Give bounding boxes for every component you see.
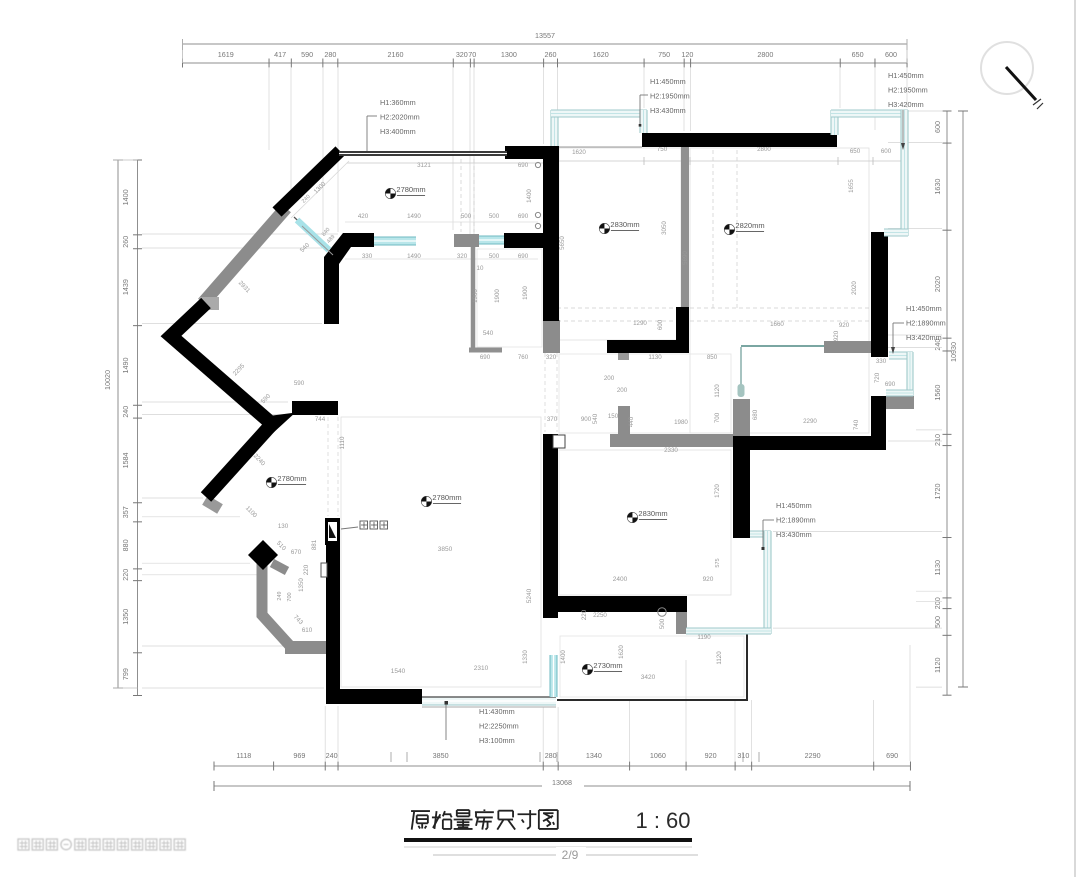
svg-text:610: 610 — [302, 627, 313, 634]
svg-text:1584: 1584 — [121, 452, 130, 468]
svg-text:H3:400mm: H3:400mm — [380, 127, 416, 136]
svg-text:320: 320 — [546, 354, 557, 361]
svg-text:5240: 5240 — [526, 588, 533, 603]
svg-text:881: 881 — [311, 539, 318, 550]
svg-text:1400: 1400 — [560, 650, 567, 664]
svg-text:2290: 2290 — [803, 418, 817, 425]
svg-text:150: 150 — [608, 413, 619, 420]
svg-text:590: 590 — [294, 380, 305, 387]
svg-text:H2:2020mm: H2:2020mm — [380, 113, 420, 122]
svg-text:969: 969 — [293, 751, 305, 760]
svg-text:H3:430mm: H3:430mm — [776, 530, 812, 539]
svg-text:880: 880 — [121, 539, 130, 551]
svg-text:690: 690 — [518, 162, 529, 169]
svg-text:2020: 2020 — [933, 276, 942, 292]
svg-text:540: 540 — [483, 330, 494, 337]
svg-text:690: 690 — [480, 354, 491, 361]
svg-text:500: 500 — [659, 618, 666, 629]
svg-text:650: 650 — [850, 148, 861, 155]
svg-text:280: 280 — [324, 50, 336, 59]
svg-text:330: 330 — [362, 253, 373, 260]
svg-text:249: 249 — [277, 591, 283, 600]
svg-text:1130: 1130 — [648, 354, 662, 361]
svg-text:13557: 13557 — [535, 31, 555, 40]
svg-text:600: 600 — [657, 319, 664, 330]
svg-text:H2:1890mm: H2:1890mm — [776, 516, 816, 525]
svg-text:720: 720 — [874, 372, 881, 383]
svg-text:H1:450mm: H1:450mm — [906, 304, 942, 313]
svg-text:744: 744 — [315, 416, 326, 423]
svg-text:690: 690 — [518, 253, 529, 260]
svg-text:H1:430mm: H1:430mm — [479, 707, 515, 716]
svg-text:H3:420mm: H3:420mm — [888, 100, 924, 109]
svg-text:600: 600 — [885, 50, 897, 59]
svg-text:1655: 1655 — [848, 179, 855, 193]
svg-text:370: 370 — [547, 416, 558, 423]
svg-text:1400: 1400 — [526, 189, 533, 203]
svg-text:260: 260 — [545, 50, 557, 59]
svg-text:600: 600 — [881, 148, 892, 155]
svg-text:850: 850 — [707, 354, 718, 361]
svg-text:320: 320 — [456, 50, 468, 59]
svg-text:2830mm: 2830mm — [638, 509, 667, 518]
svg-text:1350: 1350 — [121, 609, 130, 625]
svg-text:920: 920 — [833, 330, 840, 341]
svg-text:1980: 1980 — [674, 419, 688, 426]
svg-text:1619: 1619 — [218, 50, 234, 59]
svg-text:2/9: 2/9 — [562, 848, 579, 862]
svg-text:200: 200 — [604, 375, 615, 382]
svg-text:5690: 5690 — [682, 251, 689, 265]
svg-text:760: 760 — [518, 354, 529, 361]
svg-text:3121: 3121 — [417, 162, 431, 169]
svg-text:1620: 1620 — [618, 645, 625, 659]
svg-text:240: 240 — [121, 406, 130, 418]
svg-text:920: 920 — [839, 322, 850, 329]
svg-text:600: 600 — [933, 121, 942, 133]
svg-text:120: 120 — [681, 50, 693, 59]
svg-text:690: 690 — [885, 381, 896, 388]
svg-text:1120: 1120 — [933, 658, 942, 673]
svg-text:670: 670 — [291, 549, 302, 556]
svg-text:3850: 3850 — [433, 751, 449, 760]
svg-text:3420: 3420 — [641, 674, 656, 681]
svg-text:1720: 1720 — [714, 484, 721, 498]
svg-text:13068: 13068 — [552, 778, 572, 787]
svg-text:1110: 1110 — [339, 436, 346, 449]
svg-text:920: 920 — [703, 576, 714, 583]
svg-text:H3:420mm: H3:420mm — [906, 333, 942, 342]
svg-text:1130: 1130 — [933, 560, 942, 575]
svg-text:540: 540 — [592, 413, 599, 424]
svg-text:420: 420 — [358, 213, 369, 220]
svg-text:2780mm: 2780mm — [396, 185, 425, 194]
svg-text:3050: 3050 — [661, 221, 668, 235]
svg-text:500: 500 — [489, 213, 500, 220]
svg-text:H1:360mm: H1:360mm — [380, 98, 416, 107]
svg-text:1490: 1490 — [407, 253, 421, 260]
svg-text:H1:450mm: H1:450mm — [776, 501, 812, 510]
svg-text:900: 900 — [581, 416, 592, 423]
svg-text:2160: 2160 — [388, 50, 404, 59]
svg-text:2330: 2330 — [664, 447, 678, 454]
svg-text:2730mm: 2730mm — [593, 661, 622, 670]
svg-text:1660: 1660 — [770, 321, 784, 328]
svg-text:200: 200 — [617, 387, 628, 394]
svg-text:10020: 10020 — [103, 370, 112, 390]
svg-text:1900: 1900 — [472, 289, 479, 303]
svg-text:1300: 1300 — [501, 50, 517, 59]
svg-text:690: 690 — [518, 213, 529, 220]
svg-text:1190: 1190 — [697, 634, 711, 641]
svg-text:500: 500 — [933, 616, 942, 628]
svg-text:2310: 2310 — [474, 665, 489, 672]
svg-text:240: 240 — [326, 751, 338, 760]
svg-text:1330: 1330 — [522, 650, 529, 664]
svg-text:500: 500 — [489, 253, 500, 260]
svg-text:H3:100mm: H3:100mm — [479, 736, 515, 745]
svg-text:920: 920 — [705, 751, 717, 760]
svg-text:2800: 2800 — [757, 50, 773, 59]
svg-text:2800: 2800 — [757, 146, 771, 153]
svg-text:1120: 1120 — [714, 384, 721, 398]
svg-text:2820mm: 2820mm — [735, 221, 764, 230]
svg-text:10930: 10930 — [949, 342, 958, 362]
svg-text:799: 799 — [121, 668, 130, 680]
svg-text:1439: 1439 — [121, 279, 130, 295]
svg-text:500: 500 — [461, 213, 472, 220]
svg-text:700: 700 — [714, 412, 721, 423]
svg-text:H1:450mm: H1:450mm — [888, 71, 924, 80]
svg-text:1120: 1120 — [716, 651, 723, 665]
svg-text:700: 700 — [287, 592, 293, 601]
svg-text:1490: 1490 — [407, 213, 421, 220]
svg-text:1560: 1560 — [933, 385, 942, 401]
svg-text:1340: 1340 — [586, 751, 602, 760]
svg-text:130: 130 — [278, 523, 289, 530]
svg-text:1620: 1620 — [593, 50, 609, 59]
svg-text:1290: 1290 — [633, 320, 647, 327]
svg-text:690: 690 — [886, 751, 898, 760]
svg-text:70: 70 — [468, 50, 476, 59]
svg-text:10: 10 — [477, 265, 484, 272]
svg-text:H2:1890mm: H2:1890mm — [906, 319, 946, 328]
svg-text:H1:450mm: H1:450mm — [650, 77, 686, 86]
svg-text:H3:430mm: H3:430mm — [650, 106, 686, 115]
svg-text:200: 200 — [933, 597, 942, 609]
svg-text:1060: 1060 — [650, 751, 666, 760]
svg-text:220: 220 — [303, 564, 310, 575]
svg-text:H2:1950mm: H2:1950mm — [650, 92, 690, 101]
svg-text:1720: 1720 — [933, 484, 942, 500]
svg-text:650: 650 — [852, 50, 864, 59]
svg-text:2780mm: 2780mm — [432, 493, 461, 502]
svg-text:280: 280 — [545, 751, 557, 760]
svg-text:1118: 1118 — [236, 751, 251, 760]
svg-text:1900: 1900 — [494, 289, 501, 303]
svg-text:417: 417 — [274, 50, 286, 59]
svg-text:575: 575 — [715, 558, 721, 567]
svg-text:750: 750 — [658, 50, 670, 59]
svg-text:1540: 1540 — [391, 668, 406, 675]
svg-text:680: 680 — [752, 409, 759, 420]
svg-text:2780mm: 2780mm — [277, 474, 306, 483]
svg-text:2250: 2250 — [593, 612, 607, 619]
svg-text:330: 330 — [876, 358, 887, 365]
svg-text:1630: 1630 — [933, 179, 942, 195]
svg-text:1400: 1400 — [121, 189, 130, 205]
svg-text:H2:1950mm: H2:1950mm — [888, 86, 928, 95]
svg-text:1490: 1490 — [121, 357, 130, 373]
svg-text:5650: 5650 — [559, 236, 566, 250]
svg-text:210: 210 — [933, 434, 942, 446]
svg-text:220: 220 — [581, 609, 588, 620]
svg-text:320: 320 — [457, 253, 468, 260]
svg-text:220: 220 — [121, 569, 130, 581]
svg-text:1 : 60: 1 : 60 — [635, 808, 690, 833]
svg-text:440: 440 — [628, 416, 635, 427]
svg-text:357: 357 — [121, 506, 130, 518]
svg-text:1900: 1900 — [522, 286, 529, 300]
svg-text:2400: 2400 — [613, 576, 628, 583]
svg-text:750: 750 — [657, 146, 668, 153]
svg-text:260: 260 — [121, 236, 130, 248]
svg-text:3850: 3850 — [438, 546, 453, 553]
svg-text:1350: 1350 — [298, 578, 305, 592]
svg-text:740: 740 — [853, 419, 860, 430]
svg-text:2020: 2020 — [851, 281, 858, 295]
svg-text:2290: 2290 — [805, 751, 821, 760]
svg-text:2830mm: 2830mm — [610, 220, 639, 229]
svg-text:1620: 1620 — [572, 149, 586, 156]
svg-text:590: 590 — [301, 50, 313, 59]
svg-text:H2:2250mm: H2:2250mm — [479, 722, 519, 731]
